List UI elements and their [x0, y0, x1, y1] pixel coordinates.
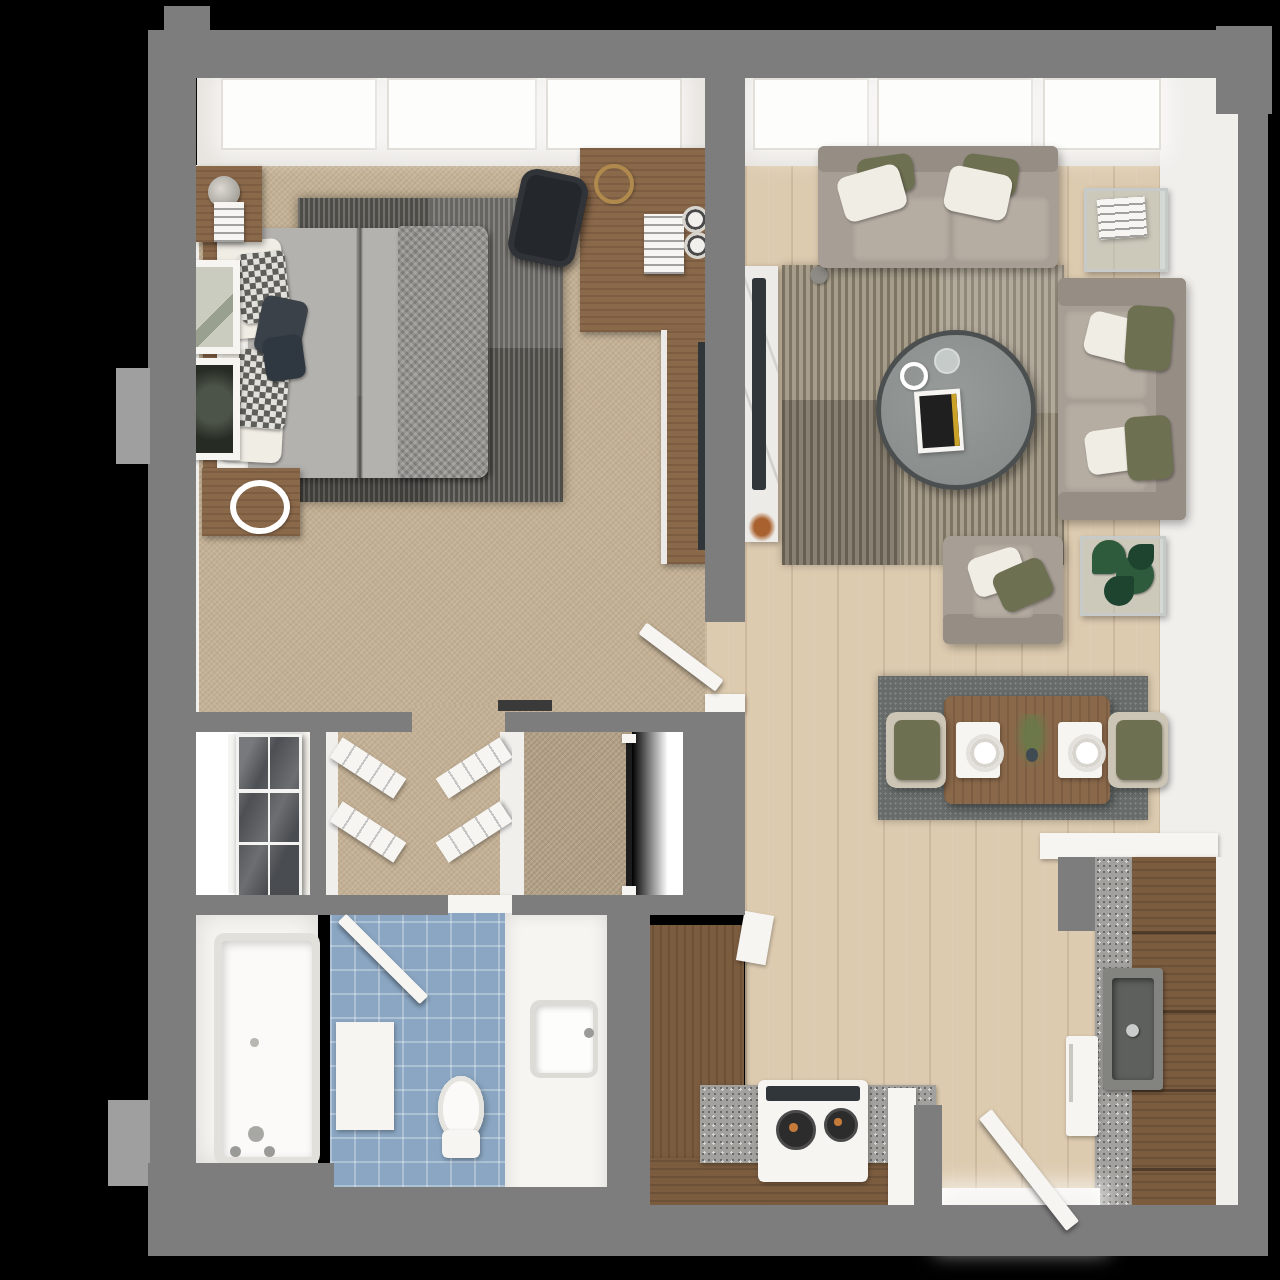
dining-chair-left-cushion — [894, 720, 940, 780]
dining-vase — [1026, 748, 1038, 762]
sofa-right-pillow-olive-1 — [1124, 304, 1174, 371]
kitchen-faucet — [1126, 1024, 1139, 1037]
wall-closet-mid — [310, 732, 326, 895]
wall-closet-top-right — [505, 712, 683, 732]
stove-burner-small — [824, 1108, 858, 1142]
wall-tubroom-south — [148, 1163, 334, 1207]
wall-left-column-upper — [116, 368, 150, 464]
vanity-sink-basin — [530, 1000, 598, 1078]
wall-closet-east — [683, 712, 745, 915]
plate-right — [1068, 734, 1106, 772]
wall-kitchen-stub — [1058, 857, 1095, 931]
wall-right — [1238, 56, 1268, 1256]
tub-handle-left — [230, 1146, 241, 1157]
toilet-tank — [442, 1130, 480, 1158]
sofa-right-arm-top — [1058, 278, 1186, 306]
wall-closet-bottom-left — [196, 895, 448, 915]
stove-burner-small-flame — [834, 1118, 842, 1126]
floor-plan-render — [0, 0, 1280, 1280]
wall-closet-top-left — [196, 712, 412, 732]
shower-bench — [336, 1022, 394, 1130]
bed-pillow-navy-2 — [261, 333, 307, 382]
side-table-book — [1097, 196, 1148, 239]
bedroom-window-3 — [546, 78, 682, 150]
fridge-handle — [1069, 1044, 1073, 1102]
tub-handle-right — [264, 1146, 275, 1157]
bed-knit-throw — [398, 226, 488, 478]
living-window-2 — [877, 78, 1033, 150]
wall-left-column-lower — [108, 1100, 150, 1186]
right-closet-floor — [524, 732, 632, 895]
vanity-faucet — [584, 1028, 594, 1038]
armchair-back — [943, 614, 1063, 644]
bedroom-window-2 — [387, 78, 537, 150]
wall-bottom — [148, 1205, 1268, 1256]
monstera-leaf-3 — [1104, 576, 1134, 606]
nightstand-book — [214, 202, 244, 242]
living-window-3 — [1043, 78, 1161, 150]
wall-top-right-block — [1216, 26, 1272, 114]
tub-drain — [250, 1038, 259, 1047]
wall-divider-bedroom-living — [705, 30, 745, 622]
dining-chair-right-cushion — [1116, 720, 1162, 780]
right-closet-west-wall-face — [512, 732, 524, 895]
framed-art-2-print — [195, 365, 233, 453]
bedroom-door-jamb — [705, 694, 745, 712]
wall-closet-bottom-right — [512, 895, 683, 915]
wall-bathroom-south — [330, 1187, 607, 1207]
desk-lamp — [594, 164, 634, 204]
stove-control-strip — [766, 1086, 860, 1101]
right-closet-glow — [632, 732, 683, 895]
wall-top — [148, 30, 1224, 78]
coffee-table-cup — [900, 362, 928, 390]
magazine-cover — [919, 394, 960, 448]
console-dried-plant — [748, 512, 776, 542]
bedroom-window-1 — [221, 78, 377, 150]
wall-top-left-step — [164, 6, 210, 32]
coffee-table-glass-cup — [934, 348, 960, 374]
bathroom-door-threshold — [448, 895, 512, 915]
wall-left — [148, 30, 196, 1256]
wall-bathroom-east — [607, 913, 650, 1207]
closet-door-head — [498, 700, 552, 711]
tub-spout — [248, 1126, 264, 1142]
sofa-top-back — [818, 146, 1058, 172]
living-tv — [752, 278, 766, 490]
bedroom-tv-console-edge — [661, 330, 667, 564]
wardrobe-side-panel — [228, 734, 236, 893]
corridor-floor — [412, 705, 508, 735]
bathtub — [214, 933, 320, 1165]
floor-lamp — [810, 266, 828, 284]
nightstand-tray — [230, 480, 290, 534]
plate-left — [966, 734, 1004, 772]
monstera-leaf-4 — [1128, 544, 1154, 570]
wall-entry-pony-core — [914, 1105, 942, 1207]
desk-papers — [644, 214, 684, 274]
stove-burner-large-flame — [789, 1123, 798, 1132]
sofa-right-arm-bottom — [1058, 492, 1186, 520]
framed-art-1-print — [195, 267, 233, 347]
mirrored-wardrobe — [236, 734, 302, 899]
kitchen-peninsula-counter — [1040, 833, 1218, 859]
sofa-right-pillow-olive-2 — [1124, 414, 1174, 481]
living-window-1 — [753, 78, 869, 150]
